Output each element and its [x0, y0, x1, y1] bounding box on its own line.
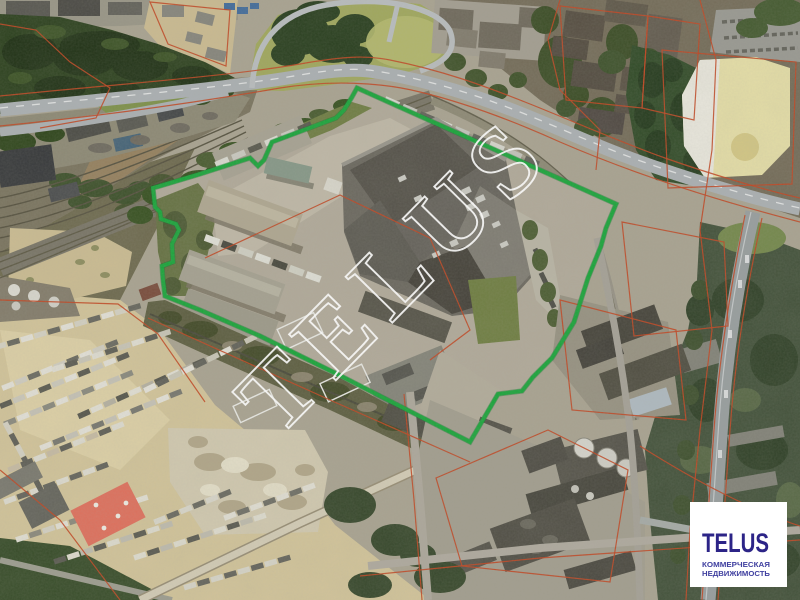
svg-text:КОММЕРЧЕСКАЯ: КОММЕРЧЕСКАЯ — [702, 560, 770, 569]
svg-text:TELUS: TELUS — [702, 528, 769, 558]
svg-text:НЕДВИЖИМОСТЬ: НЕДВИЖИМОСТЬ — [702, 569, 771, 578]
